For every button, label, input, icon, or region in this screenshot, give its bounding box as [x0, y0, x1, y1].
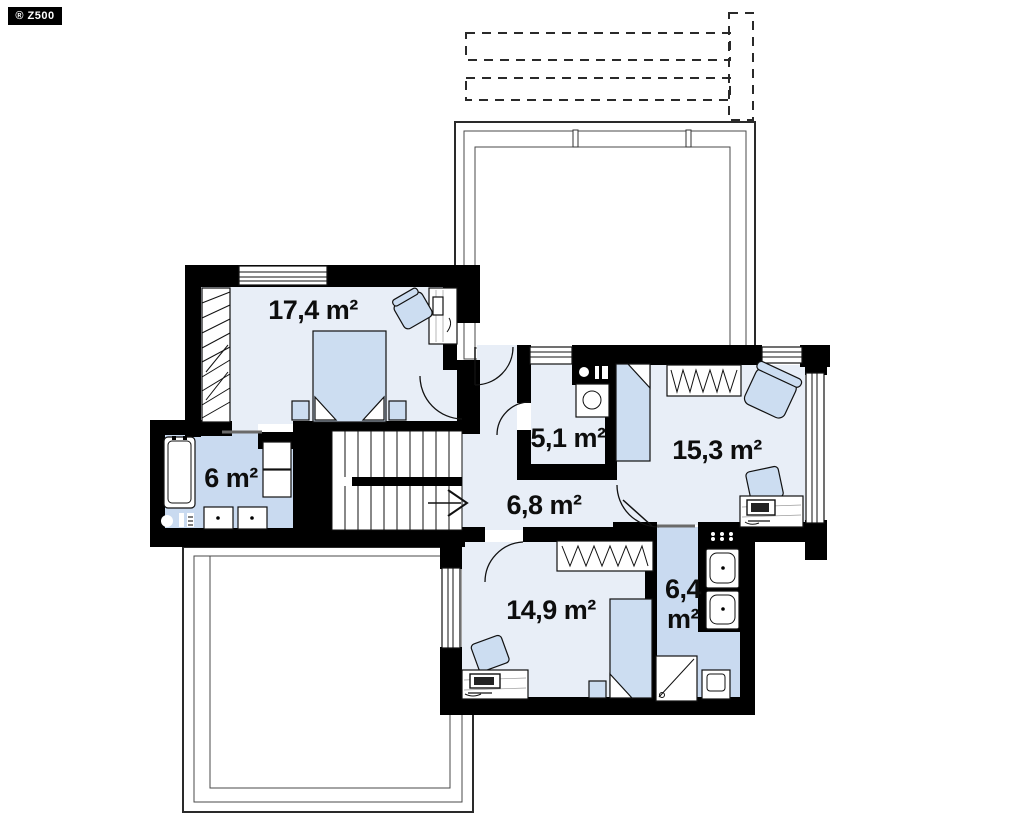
window-utility: [530, 347, 572, 364]
window-bedroom-bottom-side: [442, 568, 460, 648]
terrace-top: [455, 122, 755, 368]
room-label-bedroom-right: 15,3 m²: [672, 435, 762, 465]
window-bedroom-top: [239, 266, 327, 285]
shower: [656, 656, 697, 701]
washbasin: [204, 507, 233, 529]
desk: [462, 670, 528, 699]
room-label-bathroom-right-line1: 6,4: [665, 574, 702, 604]
room-label-hall: 6,8 m²: [506, 490, 582, 520]
bathtub: [164, 436, 195, 508]
desk: [429, 288, 457, 344]
washbasin: [706, 591, 739, 629]
bed-double: [313, 331, 386, 422]
washing-machine-icon: [576, 384, 609, 417]
roof-outline-dashed: [466, 13, 753, 120]
window-bedroom-right-top: [762, 347, 802, 363]
washbasin: [706, 549, 739, 588]
room-label-bedroom-top-left: 17,4 m²: [268, 295, 358, 325]
clothes-rack: [557, 541, 653, 571]
stairs: [332, 431, 467, 530]
window-bedroom-right-side: [806, 373, 824, 523]
wardrobe-closet: [202, 288, 230, 422]
nightstand: [292, 401, 309, 420]
desk: [740, 496, 803, 527]
nightstand: [589, 681, 606, 698]
room-label-utility: 5,1 m²: [530, 423, 606, 453]
room-label-bedroom-bottom: 14,9 m²: [506, 595, 596, 625]
cabinet: [263, 442, 291, 469]
cabinet: [263, 470, 291, 497]
bed-single: [616, 364, 650, 461]
toilet: [702, 670, 730, 699]
clothes-rack: [667, 365, 741, 396]
terrace-bottom: [183, 547, 473, 812]
room-label-bathroom-left: 6 m²: [204, 463, 258, 493]
room-label-bathroom-right-line2: m²: [667, 604, 700, 634]
floor-plan: 17,4 m² 5,1 m² 15,3 m² 6 m² 6,8 m² 14,9 …: [0, 0, 1024, 825]
washbasin: [238, 507, 267, 529]
bed-single: [610, 599, 652, 698]
nightstand: [389, 401, 406, 420]
